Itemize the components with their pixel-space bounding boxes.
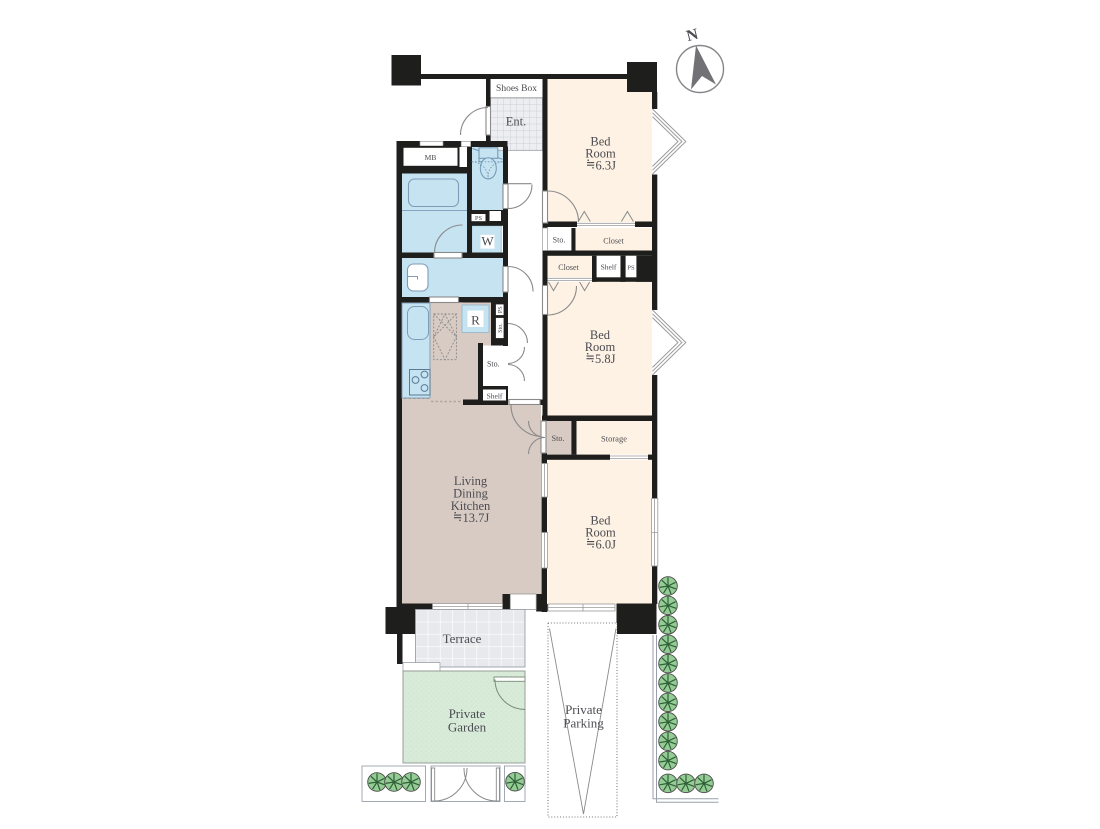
svg-text:PS: PS (498, 306, 504, 313)
svg-text:Shelf: Shelf (601, 262, 617, 271)
svg-text:13.7J: 13.7J (463, 511, 490, 525)
svg-text:Garden: Garden (448, 720, 487, 735)
svg-text:6.0J: 6.0J (596, 538, 617, 552)
svg-text:MB: MB (425, 153, 437, 162)
svg-text:R: R (471, 313, 480, 328)
svg-text:Parking: Parking (563, 716, 604, 731)
svg-text:Terrace: Terrace (443, 631, 482, 646)
svg-text:W: W (481, 234, 494, 249)
svg-text:Sto.: Sto. (552, 434, 565, 443)
svg-text:Sto.: Sto. (498, 323, 504, 333)
svg-text:5.8J: 5.8J (595, 352, 616, 366)
svg-text:Storage: Storage (601, 433, 627, 443)
svg-text:Shelf: Shelf (487, 391, 503, 400)
svg-text:6.3J: 6.3J (596, 159, 617, 173)
svg-text:PS: PS (475, 215, 483, 222)
svg-text:Ent.: Ent. (506, 115, 526, 129)
svg-text:Closet: Closet (558, 263, 579, 272)
svg-text:Sto.: Sto. (553, 236, 566, 245)
svg-text:Sto.: Sto. (487, 360, 500, 369)
svg-text:Closet: Closet (603, 237, 624, 246)
svg-text:PS: PS (627, 264, 635, 271)
svg-text:Shoes Box: Shoes Box (496, 84, 537, 94)
